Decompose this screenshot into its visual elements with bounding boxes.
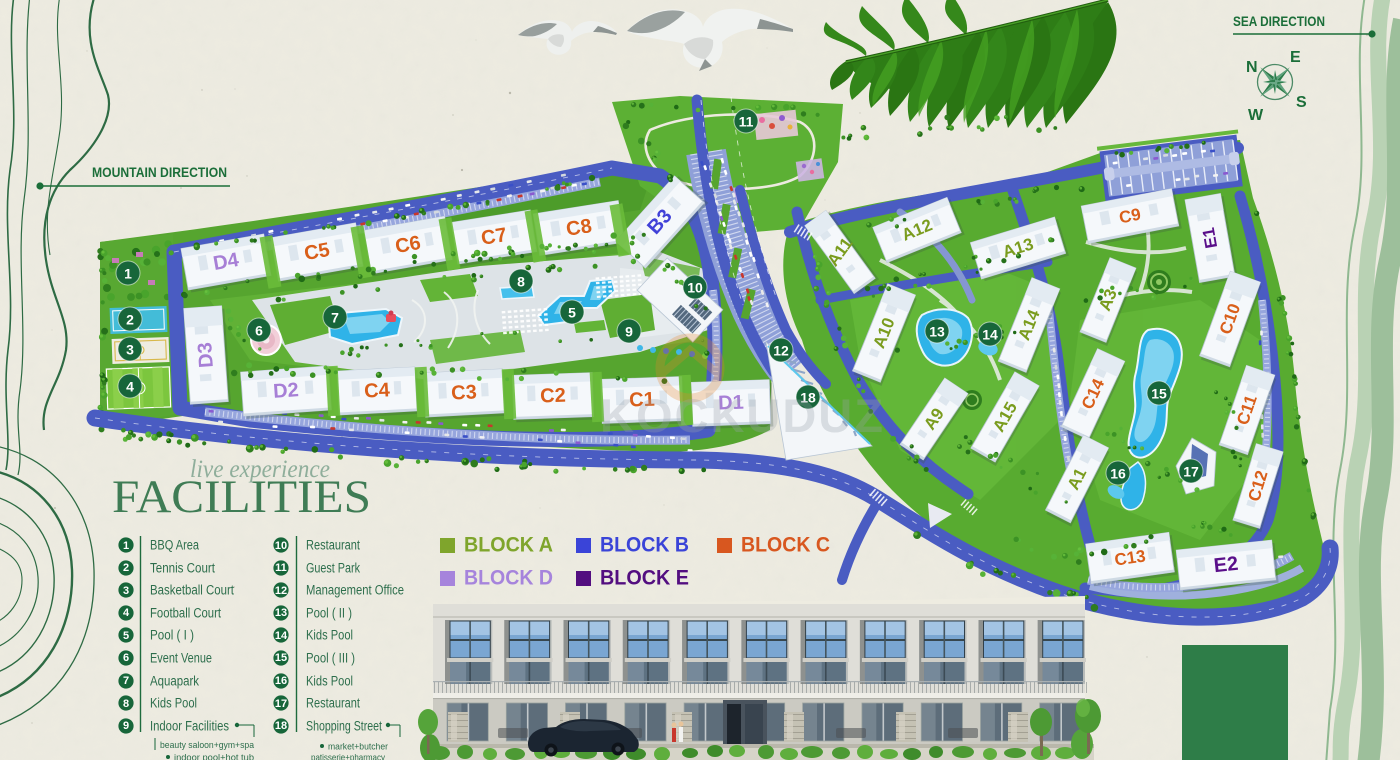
svg-text:13: 13 bbox=[929, 324, 945, 340]
svg-text:Management Office: Management Office bbox=[306, 583, 404, 598]
svg-text:C2: C2 bbox=[540, 385, 566, 408]
svg-text:C5: C5 bbox=[302, 239, 331, 265]
svg-text:W: W bbox=[1248, 107, 1264, 124]
svg-text:Event Venue: Event Venue bbox=[150, 651, 212, 666]
svg-text:C4: C4 bbox=[364, 379, 392, 402]
svg-text:Pool ( II ): Pool ( II ) bbox=[306, 606, 352, 621]
svg-text:SEA DIRECTION: SEA DIRECTION bbox=[1233, 13, 1325, 29]
svg-text:8: 8 bbox=[123, 698, 129, 710]
svg-text:S: S bbox=[1296, 94, 1307, 111]
svg-text:12: 12 bbox=[275, 585, 287, 597]
svg-text:Kids Pool: Kids Pool bbox=[306, 628, 353, 643]
svg-text:2: 2 bbox=[123, 562, 129, 574]
svg-text:16: 16 bbox=[1110, 466, 1126, 482]
svg-text:Basketball Court: Basketball Court bbox=[150, 583, 234, 598]
svg-text:KOCKUDUZ: KOCKUDUZ bbox=[600, 389, 885, 442]
svg-text:Football Court: Football Court bbox=[150, 606, 221, 621]
svg-text:BLOCK A: BLOCK A bbox=[464, 533, 553, 557]
svg-text:indoor pool+hot tub: indoor pool+hot tub bbox=[174, 753, 254, 760]
svg-text:15: 15 bbox=[275, 652, 287, 664]
svg-text:FACILITIES: FACILITIES bbox=[112, 471, 371, 523]
svg-text:Shopping Street: Shopping Street bbox=[306, 719, 382, 734]
svg-text:4: 4 bbox=[126, 379, 134, 395]
svg-text:17: 17 bbox=[1183, 464, 1199, 480]
svg-text:10: 10 bbox=[275, 540, 287, 552]
svg-text:3: 3 bbox=[126, 342, 134, 358]
svg-text:14: 14 bbox=[982, 327, 998, 343]
svg-text:12: 12 bbox=[773, 343, 789, 359]
svg-text:11: 11 bbox=[739, 114, 754, 130]
svg-text:C3: C3 bbox=[451, 381, 478, 404]
svg-text:Indoor Facilities: Indoor Facilities bbox=[150, 719, 229, 734]
svg-text:6: 6 bbox=[123, 652, 129, 664]
svg-text:E1: E1 bbox=[1199, 226, 1221, 250]
svg-text:BBQ Area: BBQ Area bbox=[150, 538, 199, 553]
svg-text:8: 8 bbox=[517, 274, 525, 290]
svg-text:10: 10 bbox=[687, 280, 703, 296]
svg-text:BLOCK C: BLOCK C bbox=[741, 533, 830, 557]
svg-text:D4: D4 bbox=[211, 249, 241, 275]
svg-text:N: N bbox=[1246, 59, 1258, 76]
svg-text:Kids Pool: Kids Pool bbox=[150, 696, 197, 711]
svg-text:18: 18 bbox=[275, 720, 287, 732]
svg-text:15: 15 bbox=[1151, 386, 1167, 402]
svg-text:Restaurant: Restaurant bbox=[306, 696, 360, 711]
svg-text:11: 11 bbox=[275, 562, 287, 574]
svg-text:1: 1 bbox=[124, 266, 132, 282]
svg-text:16: 16 bbox=[275, 675, 287, 687]
svg-text:beauty saloon+gym+spa: beauty saloon+gym+spa bbox=[160, 740, 255, 751]
svg-text:7: 7 bbox=[331, 310, 339, 326]
svg-text:6: 6 bbox=[255, 323, 263, 339]
svg-text:C7: C7 bbox=[480, 224, 509, 250]
svg-text:14: 14 bbox=[275, 630, 288, 642]
svg-text:BLOCK D: BLOCK D bbox=[464, 566, 553, 590]
svg-text:D2: D2 bbox=[272, 379, 299, 403]
svg-text:Pool ( I ): Pool ( I ) bbox=[150, 628, 194, 643]
svg-text:BLOCK B: BLOCK B bbox=[600, 533, 689, 557]
svg-text:2: 2 bbox=[126, 312, 134, 328]
svg-text:3: 3 bbox=[123, 585, 129, 597]
svg-text:4: 4 bbox=[123, 607, 130, 619]
svg-text:Kids Pool: Kids Pool bbox=[306, 674, 353, 689]
svg-text:17: 17 bbox=[275, 698, 287, 710]
svg-text:Guest Park: Guest Park bbox=[306, 561, 360, 576]
svg-text:Pool ( III ): Pool ( III ) bbox=[306, 651, 355, 666]
svg-text:5: 5 bbox=[568, 305, 576, 321]
svg-text:Restaurant: Restaurant bbox=[306, 538, 360, 553]
svg-text:9: 9 bbox=[123, 720, 129, 732]
svg-text:1: 1 bbox=[123, 540, 129, 552]
svg-text:Tennis Court: Tennis Court bbox=[150, 561, 215, 576]
svg-text:C6: C6 bbox=[393, 232, 422, 258]
svg-text:C9: C9 bbox=[1118, 205, 1143, 228]
svg-text:5: 5 bbox=[123, 630, 129, 642]
svg-text:E: E bbox=[1290, 49, 1301, 66]
svg-text:9: 9 bbox=[625, 324, 633, 340]
svg-text:7: 7 bbox=[123, 675, 129, 687]
svg-text:MOUNTAIN DIRECTION: MOUNTAIN DIRECTION bbox=[92, 164, 227, 180]
svg-text:13: 13 bbox=[275, 607, 287, 619]
svg-text:patisserie+pharmacy: patisserie+pharmacy bbox=[311, 753, 385, 760]
svg-text:D3: D3 bbox=[194, 341, 218, 368]
svg-text:C8: C8 bbox=[565, 215, 594, 241]
svg-text:BLOCK E: BLOCK E bbox=[600, 566, 689, 590]
svg-text:Aquapark: Aquapark bbox=[150, 674, 199, 689]
svg-text:market+butcher: market+butcher bbox=[328, 742, 388, 753]
svg-text:E2: E2 bbox=[1213, 553, 1240, 577]
